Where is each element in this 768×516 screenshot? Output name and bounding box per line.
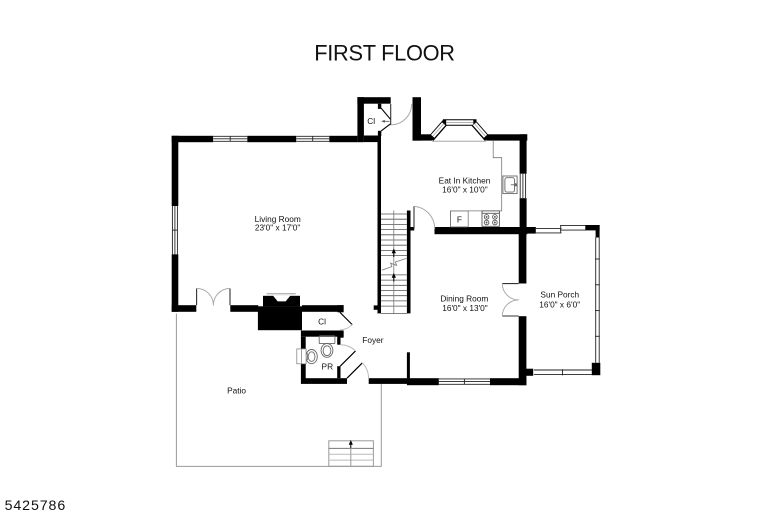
svg-text:FIRST FLOOR: FIRST FLOOR [314, 41, 454, 66]
svg-text:Patio: Patio [227, 385, 246, 395]
svg-text:Cl: Cl [367, 116, 375, 126]
svg-text:5425786: 5425786 [5, 498, 67, 514]
svg-text:Dining Room: Dining Room [440, 294, 488, 304]
svg-text:16'0" x 10'0": 16'0" x 10'0" [442, 184, 488, 194]
svg-text:16'0" x 6'0": 16'0" x 6'0" [539, 299, 580, 309]
svg-text:Foyer: Foyer [362, 335, 383, 345]
svg-text:16'0" x 13'0": 16'0" x 13'0" [442, 303, 488, 313]
svg-text:Cl: Cl [318, 316, 326, 326]
svg-text:23'0" x 17'0": 23'0" x 17'0" [255, 223, 301, 233]
svg-text:Sun Porch: Sun Porch [540, 290, 579, 300]
svg-text:F: F [457, 214, 462, 224]
svg-text:PR: PR [322, 362, 334, 372]
